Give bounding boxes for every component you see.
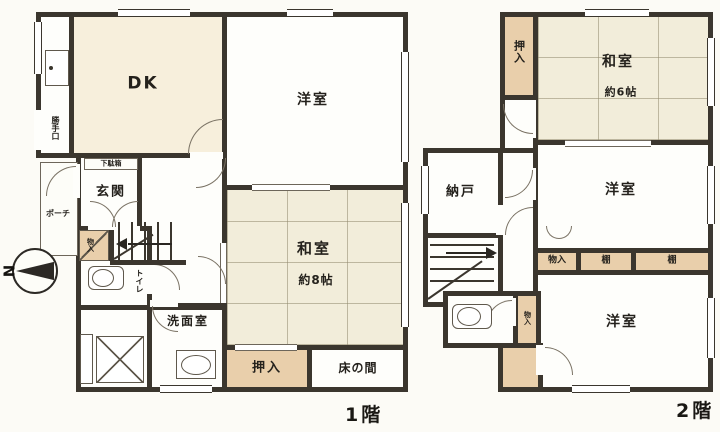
window (707, 166, 715, 224)
label-shelf-left: 棚 (601, 257, 610, 266)
label-understairs-storage: 物入 (87, 238, 94, 252)
room-japanese-1f (222, 185, 408, 350)
label-western-1f: 洋室 (297, 93, 329, 107)
label-closet-1f: 押入 (252, 362, 282, 375)
label-storage-small-2f: 物入 (524, 311, 531, 325)
north-label: N (0, 265, 17, 278)
stair-arrow (128, 243, 172, 245)
window (707, 298, 715, 358)
door-gap (146, 264, 153, 294)
label-dk: DK (127, 76, 158, 93)
window (585, 9, 649, 17)
label-entrance: 玄関 (96, 186, 126, 199)
label-nando: 納戸 (446, 186, 476, 199)
window (160, 385, 212, 393)
label-back-door: 勝手口 (51, 116, 59, 140)
label-porch: ポーチ (46, 210, 70, 218)
window (707, 38, 715, 106)
floor1-caption: 1階 (345, 400, 383, 427)
label-western-2f-bottom: 洋室 (606, 315, 638, 329)
sliding-door (235, 344, 297, 351)
floorplan-canvas: DK 洋室 玄関 下駄箱 ポーチ 勝手口 物入 トイレ 洗面室 和室 約8帖 押… (0, 0, 720, 432)
room-japanese-2f (533, 12, 713, 145)
wall-segment (109, 230, 114, 261)
stair-arrow-head (486, 247, 497, 259)
window (572, 385, 630, 393)
stair-arrow (446, 252, 486, 254)
bathtub (96, 336, 144, 383)
label-shoe-cabinet: 下駄箱 (101, 161, 122, 168)
stair-arrow-head (116, 238, 127, 250)
door-gap (496, 205, 503, 235)
door-gap (536, 345, 543, 375)
label-storage-2f: 物入 (548, 257, 566, 266)
bath-shelf (80, 334, 93, 384)
sliding-door (565, 140, 651, 147)
window (34, 22, 42, 74)
label-shelf-right: 棚 (667, 257, 676, 266)
window (421, 166, 429, 214)
window (287, 9, 333, 17)
compass-needle (16, 252, 54, 290)
wall-segment (110, 260, 186, 265)
stairs-1f (118, 222, 182, 262)
sink-basin (181, 355, 211, 375)
compass-icon (12, 248, 58, 294)
sliding-door (252, 184, 330, 191)
label-closet-2f: 押入 (514, 40, 525, 64)
label-washroom: 洗面室 (167, 315, 209, 327)
appliance-handle (49, 66, 53, 70)
door-gap (34, 110, 41, 150)
floor2-caption: 2階 (676, 396, 714, 423)
toilet-bowl (92, 269, 114, 287)
label-toilet-1f: トイレ (135, 269, 143, 293)
label-western-2f-middle: 洋室 (605, 183, 637, 197)
label-japanese-2f-size: 約6帖 (605, 87, 638, 98)
window (401, 52, 409, 162)
window (118, 9, 190, 17)
label-japanese-1f-size: 約8帖 (298, 274, 333, 286)
label-alcove: 床の間 (338, 362, 377, 374)
window (401, 203, 409, 327)
toilet-bowl (457, 307, 481, 326)
label-japanese-2f: 和室 (602, 55, 634, 69)
label-japanese-1f: 和室 (297, 242, 331, 257)
